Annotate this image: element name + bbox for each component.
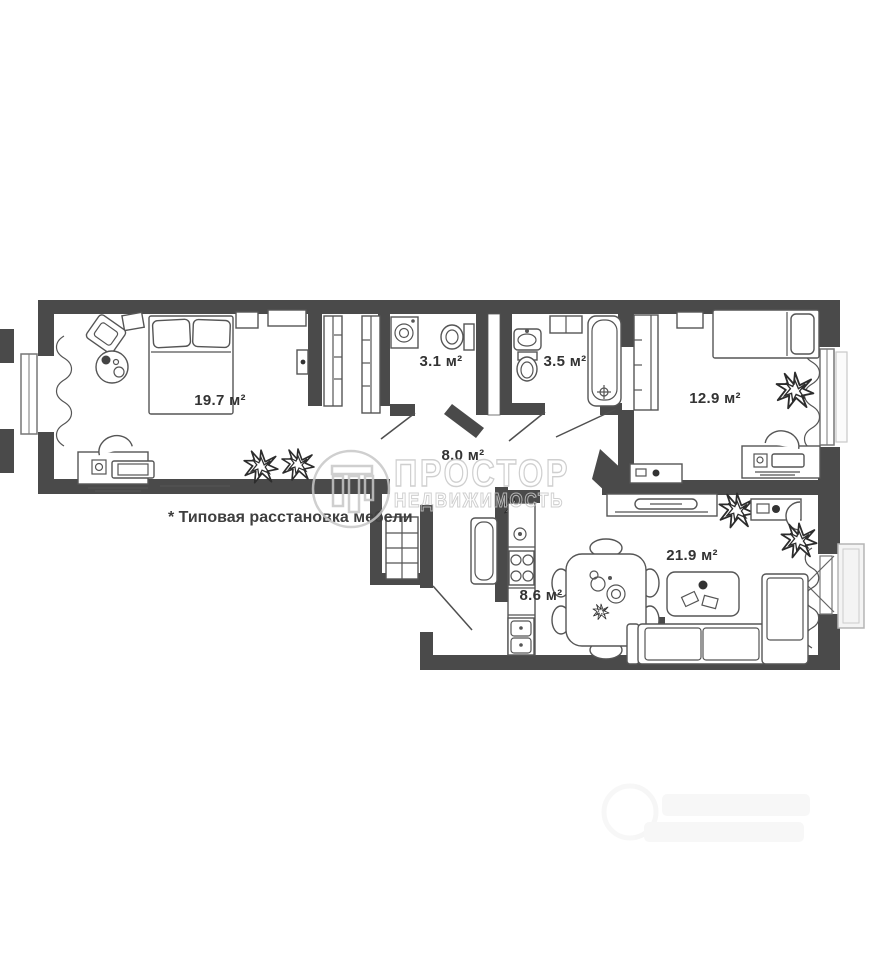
window-bedroom2 [820,349,847,445]
room-label-kitchen: 8.6 м² [520,587,563,604]
sink [514,329,541,350]
wardrobe [324,316,342,406]
shelf [677,312,703,328]
watermark-title: ПРОСТОР [394,453,570,495]
dresser [630,464,682,483]
vent-shaft [488,314,500,415]
door-bedroom2 [556,409,616,437]
wall-cabinet [550,316,582,333]
curtain-bedroom [57,336,72,446]
watermark-subtitle: НЕДВИЖИМОСТЬ [394,490,564,512]
coffee-table [667,572,739,616]
tv-stand [607,494,717,516]
armchair [85,313,127,354]
floor-plan-page: 19.7 м² 3.1 м² 3.5 м² 12.9 м² 8.0 м² 8.6… [0,0,883,960]
nightstand [122,312,144,330]
pillow [193,319,231,347]
toilet [441,324,474,350]
round-table [96,351,128,383]
nightstand [236,312,258,328]
door-entrance [433,586,472,630]
pillow [152,319,190,348]
hall-closet [386,517,418,579]
kitchen-sink [508,618,534,655]
dresser [268,310,306,326]
plant-icon [244,450,278,483]
toilet [517,352,537,381]
room-label-bathroom: 3.5 м² [544,353,587,370]
door-bathroom-small [381,413,415,439]
window-bedroom [21,354,37,434]
desk [742,446,820,478]
faint-watermark [604,786,810,842]
plant-icon [719,493,754,527]
pillow [791,314,814,354]
room-label-bathroom-small: 3.1 м² [420,353,463,370]
door-bathroom [509,412,545,441]
washing-machine [391,317,418,348]
wardrobe [362,316,380,413]
fridge [471,518,497,584]
cooktop [509,551,534,585]
plant-icon [781,523,816,557]
wardrobe [634,315,658,410]
floor-plan: 19.7 м² 3.1 м² 3.5 м² 12.9 м² 8.0 м² 8.6… [0,0,883,960]
bathtub [588,316,621,406]
room-label-bedroom2: 12.9 м² [689,390,741,407]
plant-icon [282,449,314,480]
room-label-living: 21.9 м² [666,547,718,564]
room-label-bedroom: 19.7 м² [194,392,246,409]
